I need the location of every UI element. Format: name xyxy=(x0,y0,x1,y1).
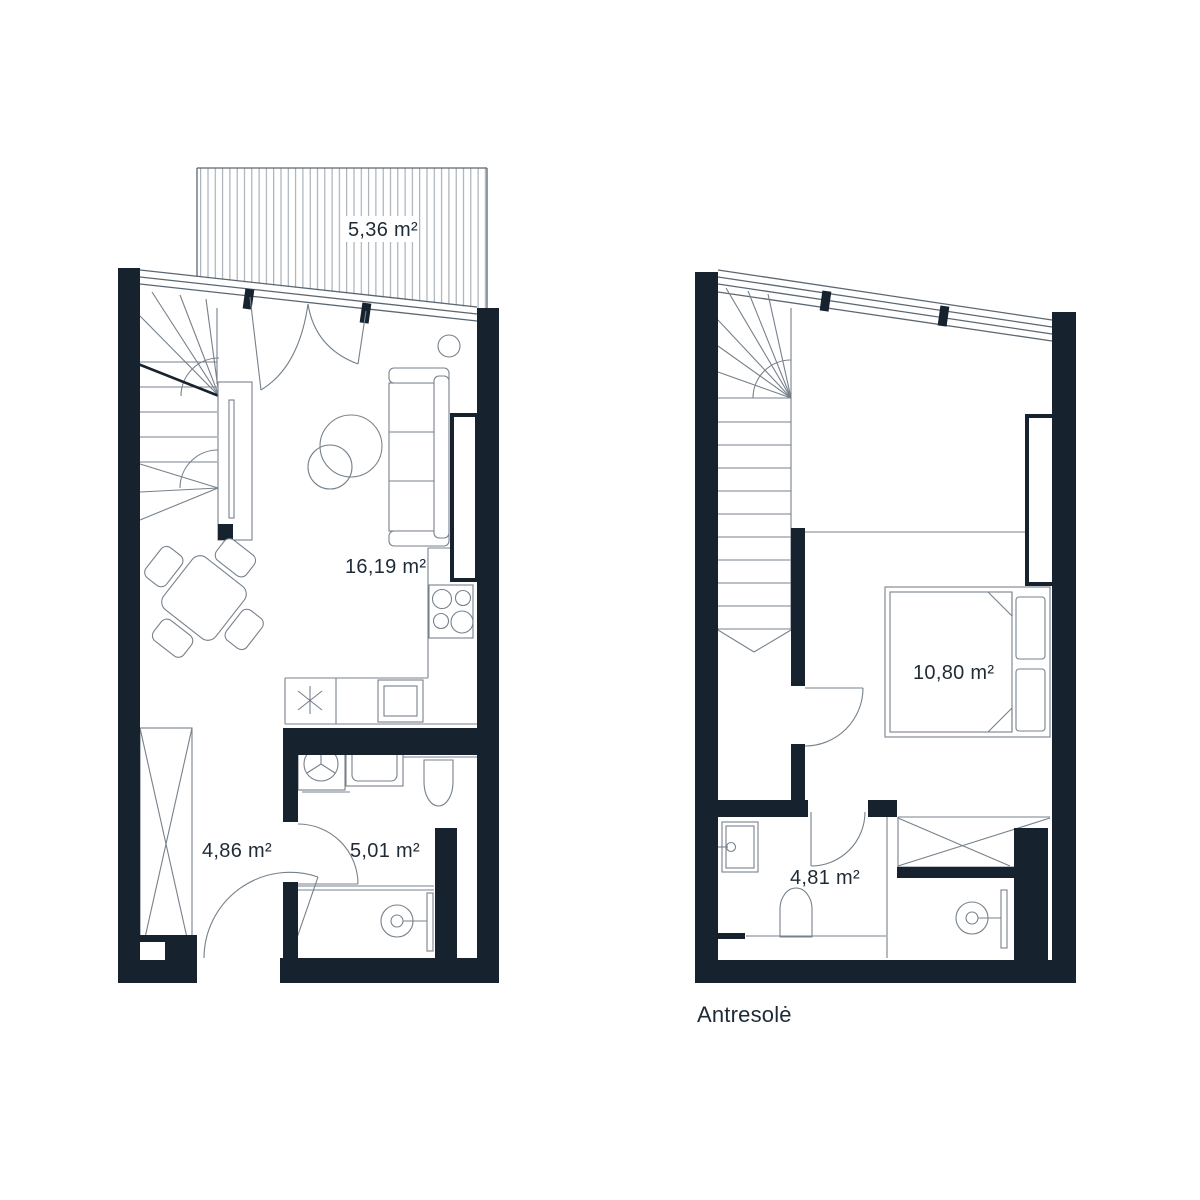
bathroom-door xyxy=(298,824,358,884)
hall-area-label: 4,86 m² xyxy=(202,840,272,862)
living-area-label: 16,19 m² xyxy=(345,556,426,578)
shower xyxy=(298,886,434,951)
toilet xyxy=(424,760,453,806)
terrace-door-left xyxy=(250,297,308,390)
wall-niche xyxy=(718,939,745,960)
kitchen-sink xyxy=(378,680,423,722)
window xyxy=(1029,418,1052,582)
shower-mezzanine xyxy=(956,890,1007,948)
stove xyxy=(429,585,473,638)
terrace-door-right xyxy=(308,304,366,364)
sofa xyxy=(389,368,449,546)
bathroom-mezzanine-area-label: 4,81 m² xyxy=(790,867,860,889)
pillow xyxy=(1016,597,1045,659)
bedroom-door xyxy=(805,688,863,746)
stairs-mezzanine xyxy=(718,288,791,652)
coffee-tables xyxy=(308,415,382,489)
stair-direction-arrow xyxy=(718,630,754,652)
toilet-mezzanine xyxy=(780,888,812,937)
dining-set xyxy=(114,508,294,688)
newel-post xyxy=(218,524,233,540)
wardrobe-ground xyxy=(140,728,192,960)
pillow xyxy=(1016,669,1045,731)
ground-floor-plan: 5,36 m² 16,19 m² 4,86 m² 5,01 m² xyxy=(114,168,499,983)
stairs-ground xyxy=(133,292,252,540)
stair-cut-line xyxy=(133,362,219,396)
bedroom-area-label: 10,80 m² xyxy=(913,662,994,684)
stair-direction-arrow xyxy=(754,630,791,652)
stair-railing xyxy=(218,382,252,540)
terrace-area-label: 5,36 m² xyxy=(348,219,418,241)
handrail xyxy=(229,400,234,518)
mezzanine-floor-name: Antresolė xyxy=(697,1002,792,1027)
shower-glass xyxy=(1001,890,1007,948)
glazing-mullion xyxy=(938,306,950,327)
bathroom-mezzanine xyxy=(718,812,1007,958)
mezzanine-plan: 10,80 m² 4,81 m² Antresolė xyxy=(695,270,1076,1027)
mezzanine-glazing-wall xyxy=(718,270,1052,341)
door-hinge-mark xyxy=(243,289,255,310)
bedroom xyxy=(805,532,1050,746)
bathroom-door-mezzanine xyxy=(811,812,865,866)
kitchen-sink-symbol xyxy=(298,686,322,714)
floorplan-canvas: 5,36 m² 16,19 m² 4,86 m² 5,01 m² xyxy=(0,0,1200,1200)
window xyxy=(454,417,475,578)
bathroom-area-label: 5,01 m² xyxy=(350,840,420,862)
floorplan-drawing: 5,36 m² 16,19 m² 4,86 m² 5,01 m² xyxy=(0,0,1200,1200)
shower-glass xyxy=(427,893,433,951)
ceiling-lamp xyxy=(438,335,460,357)
wall-niche xyxy=(140,942,165,960)
entrance-door xyxy=(204,872,318,958)
bathroom-sink-mezzanine xyxy=(718,822,758,872)
